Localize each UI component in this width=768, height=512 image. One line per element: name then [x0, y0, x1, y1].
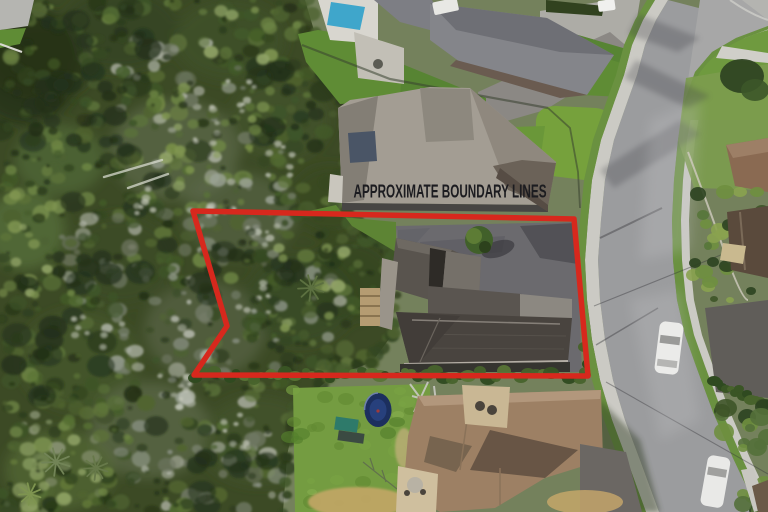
svg-text:APPROXIMATE BOUNDARY LINES: APPROXIMATE BOUNDARY LINES	[354, 181, 547, 202]
